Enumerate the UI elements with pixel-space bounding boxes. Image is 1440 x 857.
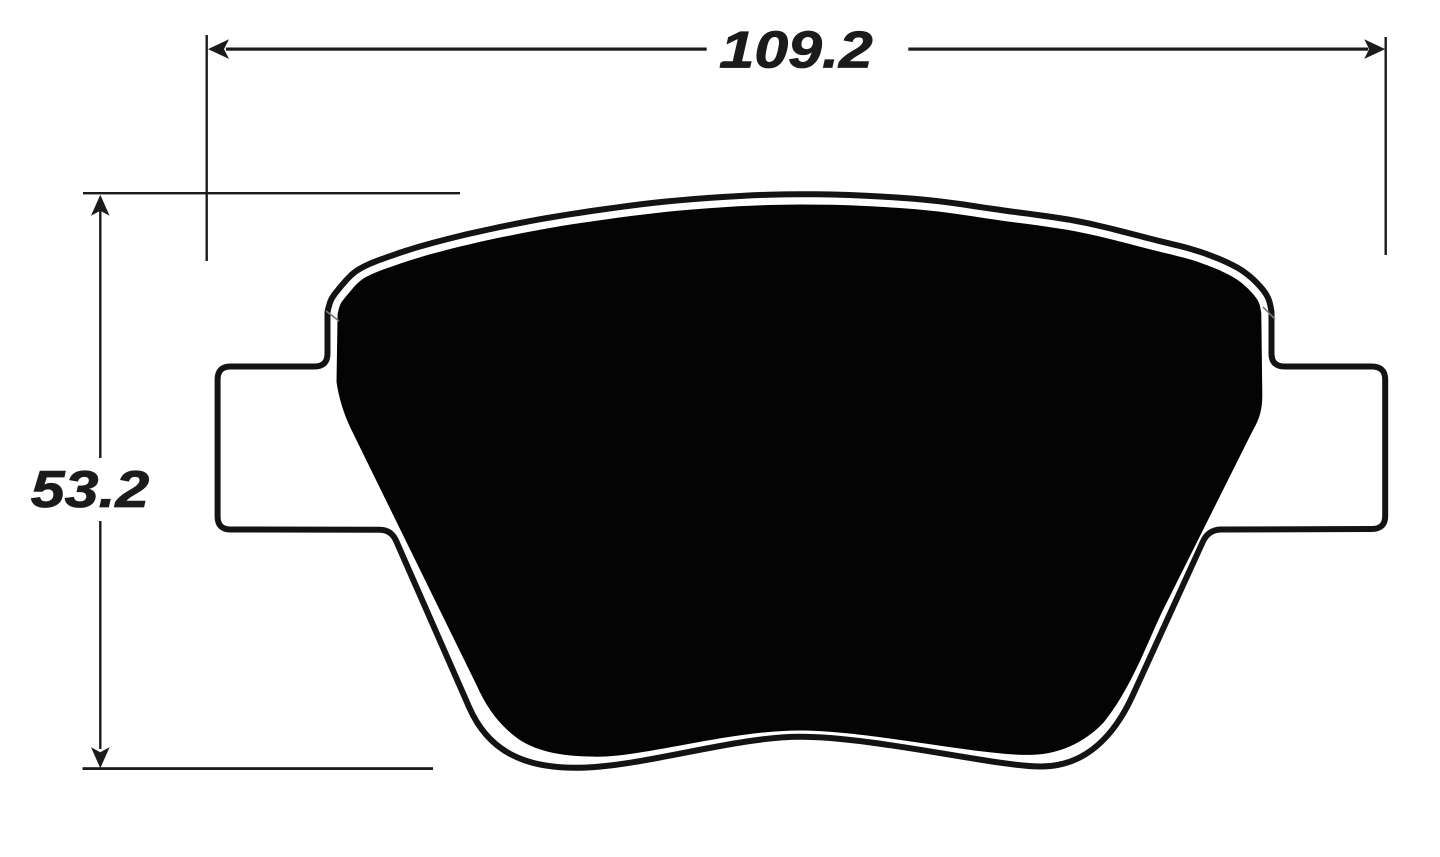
svg-text:109.2: 109.2	[720, 21, 872, 79]
svg-text:53.2: 53.2	[31, 460, 149, 518]
